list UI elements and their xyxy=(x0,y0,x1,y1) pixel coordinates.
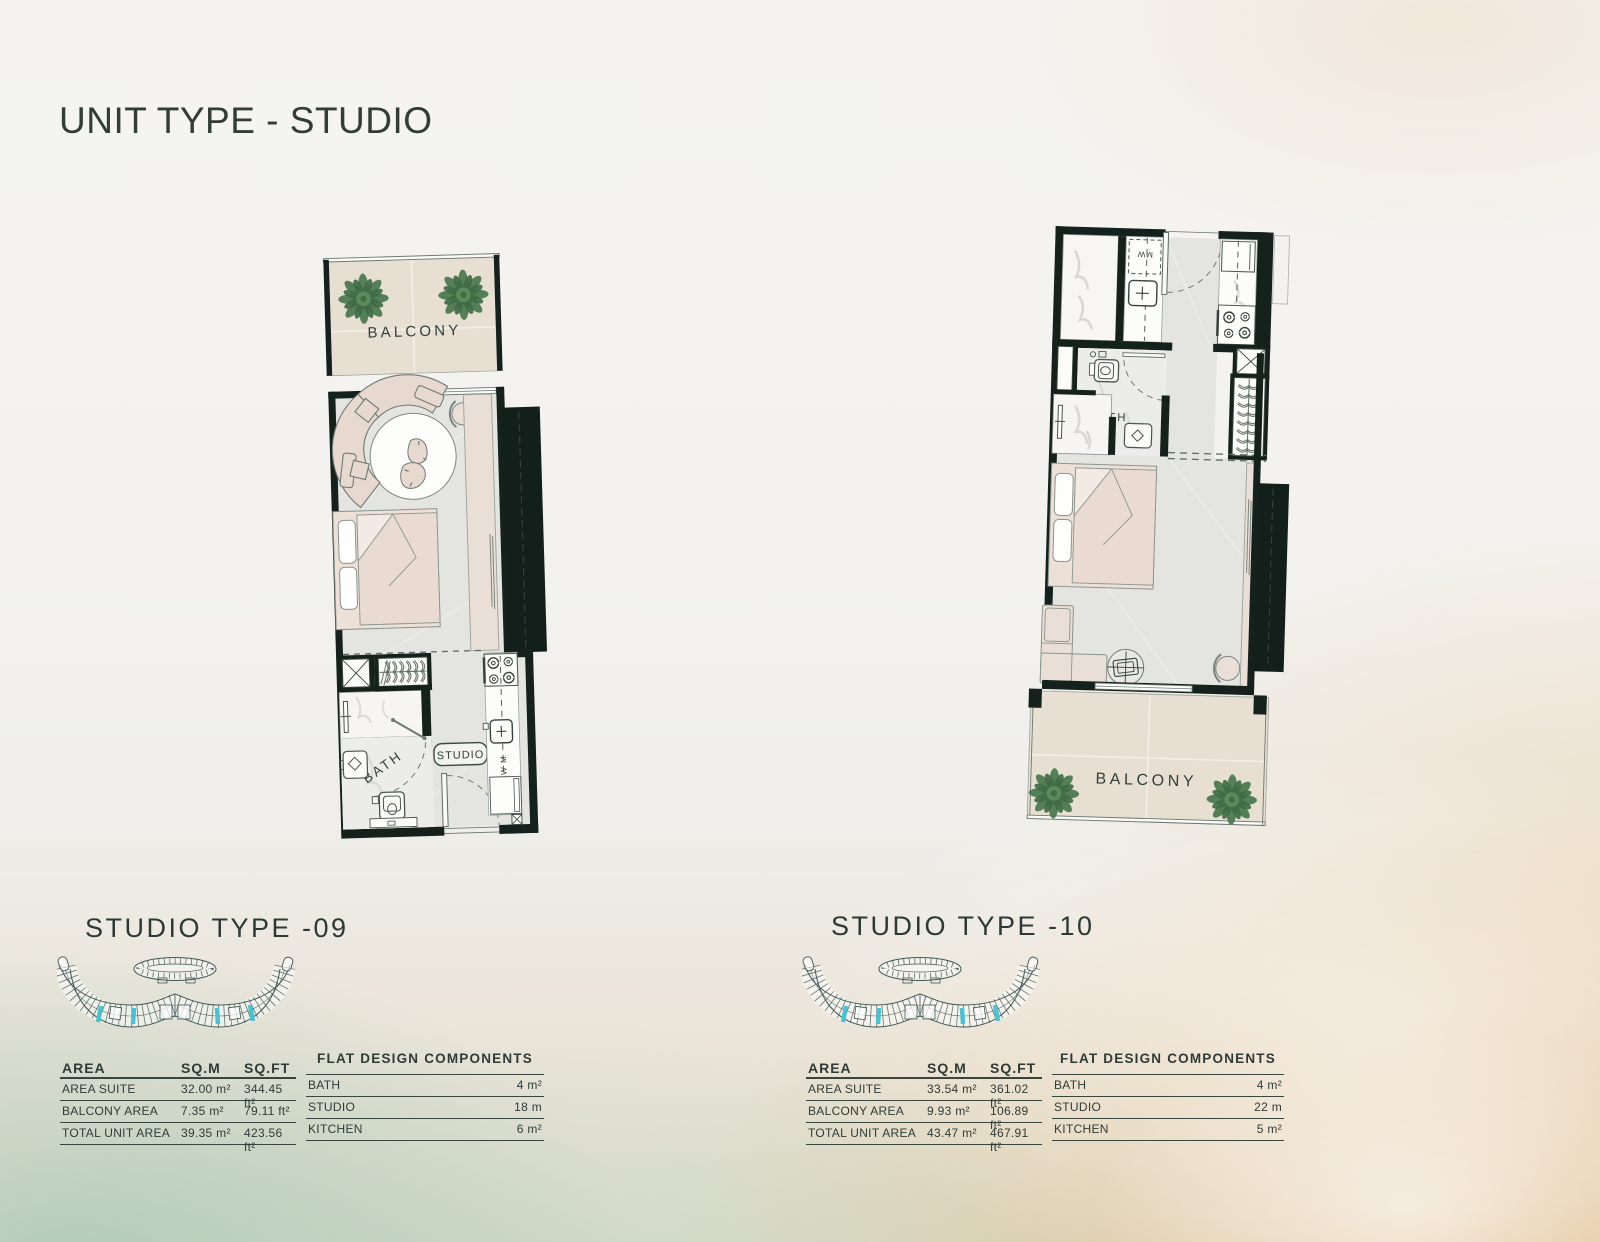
svg-text:W M: W M xyxy=(499,755,509,775)
svg-text:MW: MW xyxy=(1137,250,1153,259)
svg-text:BALCONY: BALCONY xyxy=(1095,771,1197,791)
svg-text:BALCONY: BALCONY xyxy=(367,322,462,342)
svg-text:STUDIO: STUDIO xyxy=(437,749,485,762)
